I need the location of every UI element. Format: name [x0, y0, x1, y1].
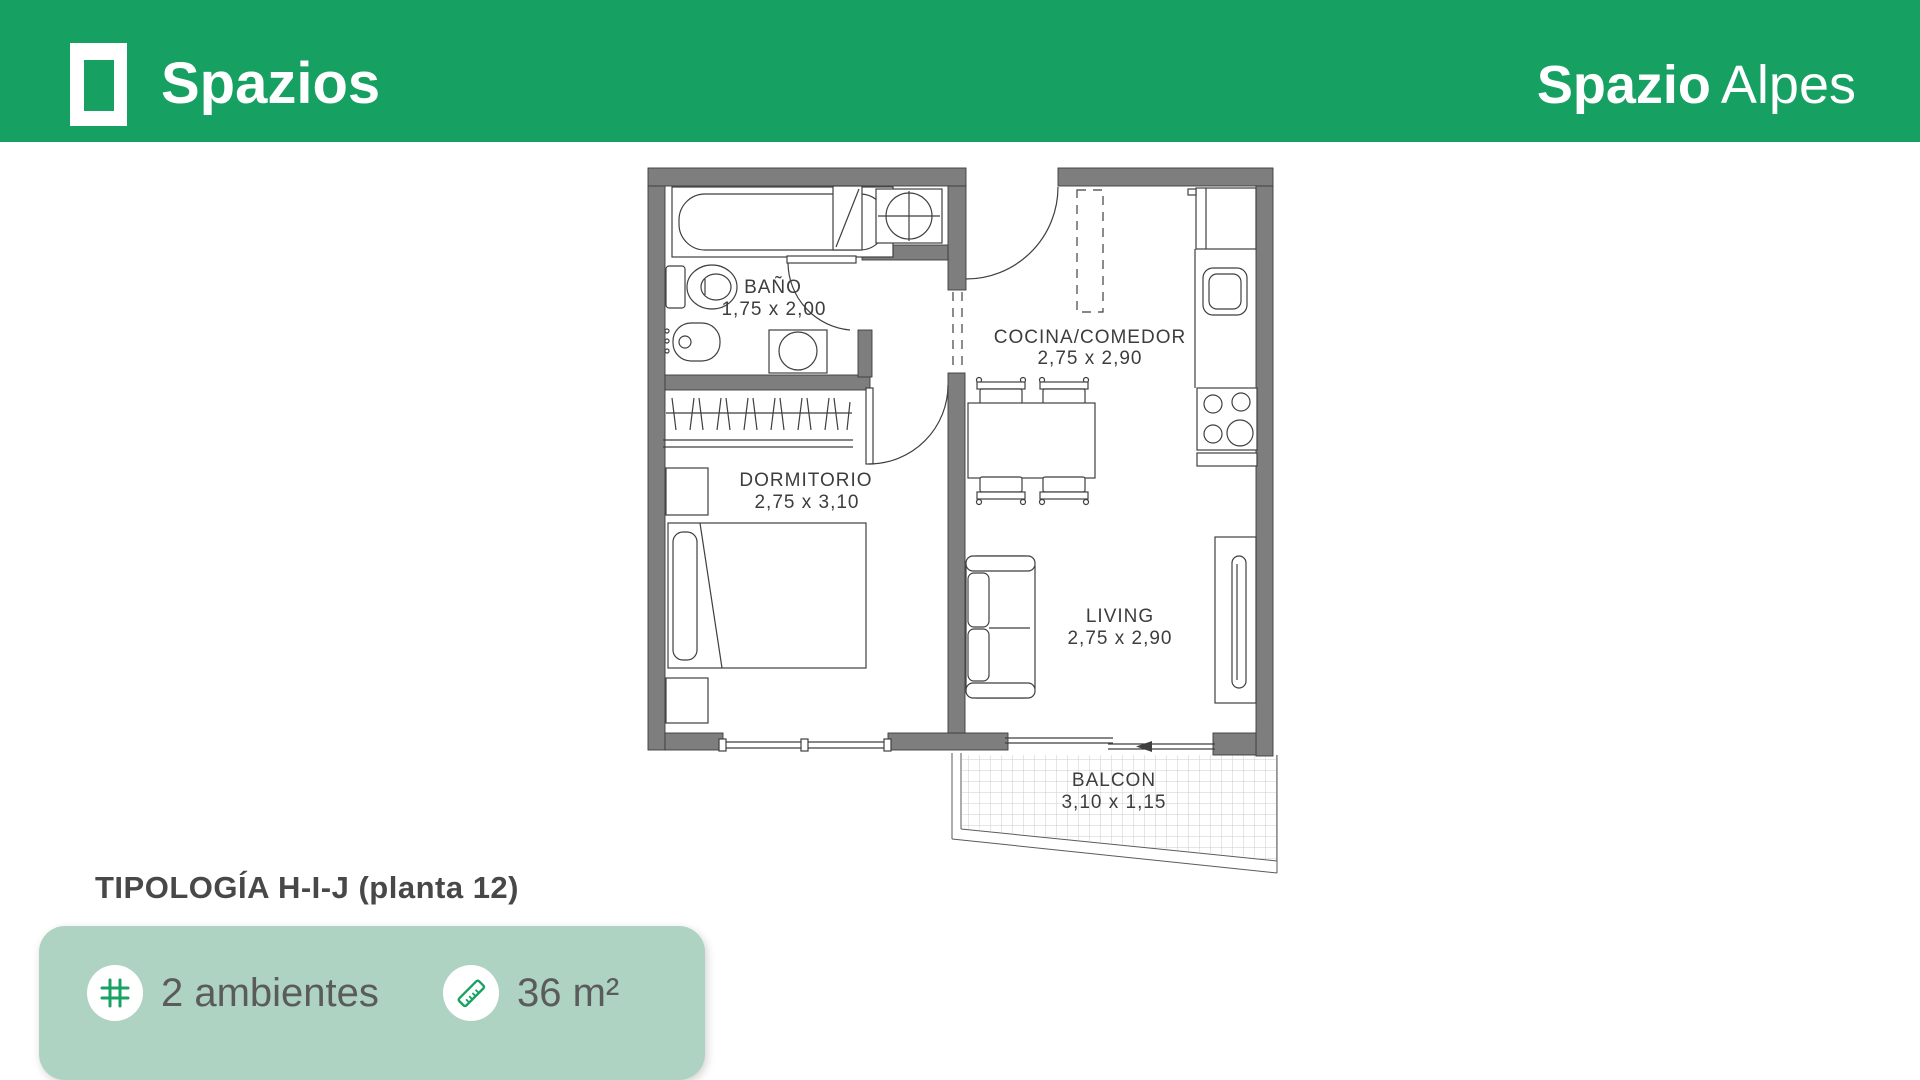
pillow: [673, 532, 697, 660]
laundry-closet: [876, 189, 942, 243]
ruler-icon: [443, 965, 499, 1021]
chair: [977, 382, 1025, 389]
room-label-cocina: COCINA/COMEDOR: [994, 327, 1186, 348]
room-label-living: LIVING: [1086, 606, 1154, 627]
chair: [1040, 382, 1088, 389]
bathroom-door-leaf: [787, 256, 856, 263]
room-dims-living: 2,75 x 2,90: [1067, 628, 1172, 649]
floor-plan: BAÑO 1,75 x 2,00 COCINA/COMEDOR 2,75 x 2…: [0, 0, 1920, 1080]
summary-card: 2 ambientes 36 m²: [39, 926, 705, 1080]
room-label-balcon: BALCON: [1072, 770, 1156, 791]
room-dims-cocina: 2,75 x 2,90: [1037, 348, 1142, 369]
entrance-door-arc: [966, 187, 1058, 279]
grid-icon: [87, 965, 143, 1021]
toilet: [666, 266, 685, 308]
room-dims-dormitorio: 2,75 x 3,10: [754, 492, 859, 513]
room-dims-balcon: 3,10 x 1,15: [1061, 792, 1166, 813]
room-dims-bano: 1,75 x 2,00: [721, 299, 826, 320]
room-label-bano: BAÑO: [744, 276, 802, 298]
rooms-badge: 2 ambientes: [87, 965, 379, 1021]
washing-machine: [769, 330, 827, 373]
slide-direction-arrow: [1136, 741, 1152, 752]
bed: [668, 523, 866, 668]
bidet: [673, 323, 720, 361]
kitchen-shelf: [1197, 453, 1257, 466]
chair: [977, 492, 1025, 499]
nightstand: [666, 468, 708, 515]
room-label-dormitorio: DORMITORIO: [739, 470, 872, 491]
area-badge-label: 36 m²: [517, 971, 619, 1016]
tv: [1232, 556, 1246, 688]
overhead-cabinet-dashed: [1077, 190, 1103, 312]
bedroom-door-leaf: [866, 388, 873, 464]
chair: [1040, 492, 1088, 499]
dining-set: [968, 378, 1095, 505]
bedroom: [663, 385, 948, 751]
rooms-badge-label: 2 ambientes: [161, 971, 379, 1016]
bedroom-door-arc: [869, 385, 948, 464]
nightstand: [666, 678, 708, 723]
typology-title: TIPOLOGÍA H-I-J (planta 12): [95, 870, 519, 906]
area-badge: 36 m²: [443, 965, 619, 1021]
dining-table: [968, 403, 1095, 478]
fridge: [1196, 188, 1256, 249]
